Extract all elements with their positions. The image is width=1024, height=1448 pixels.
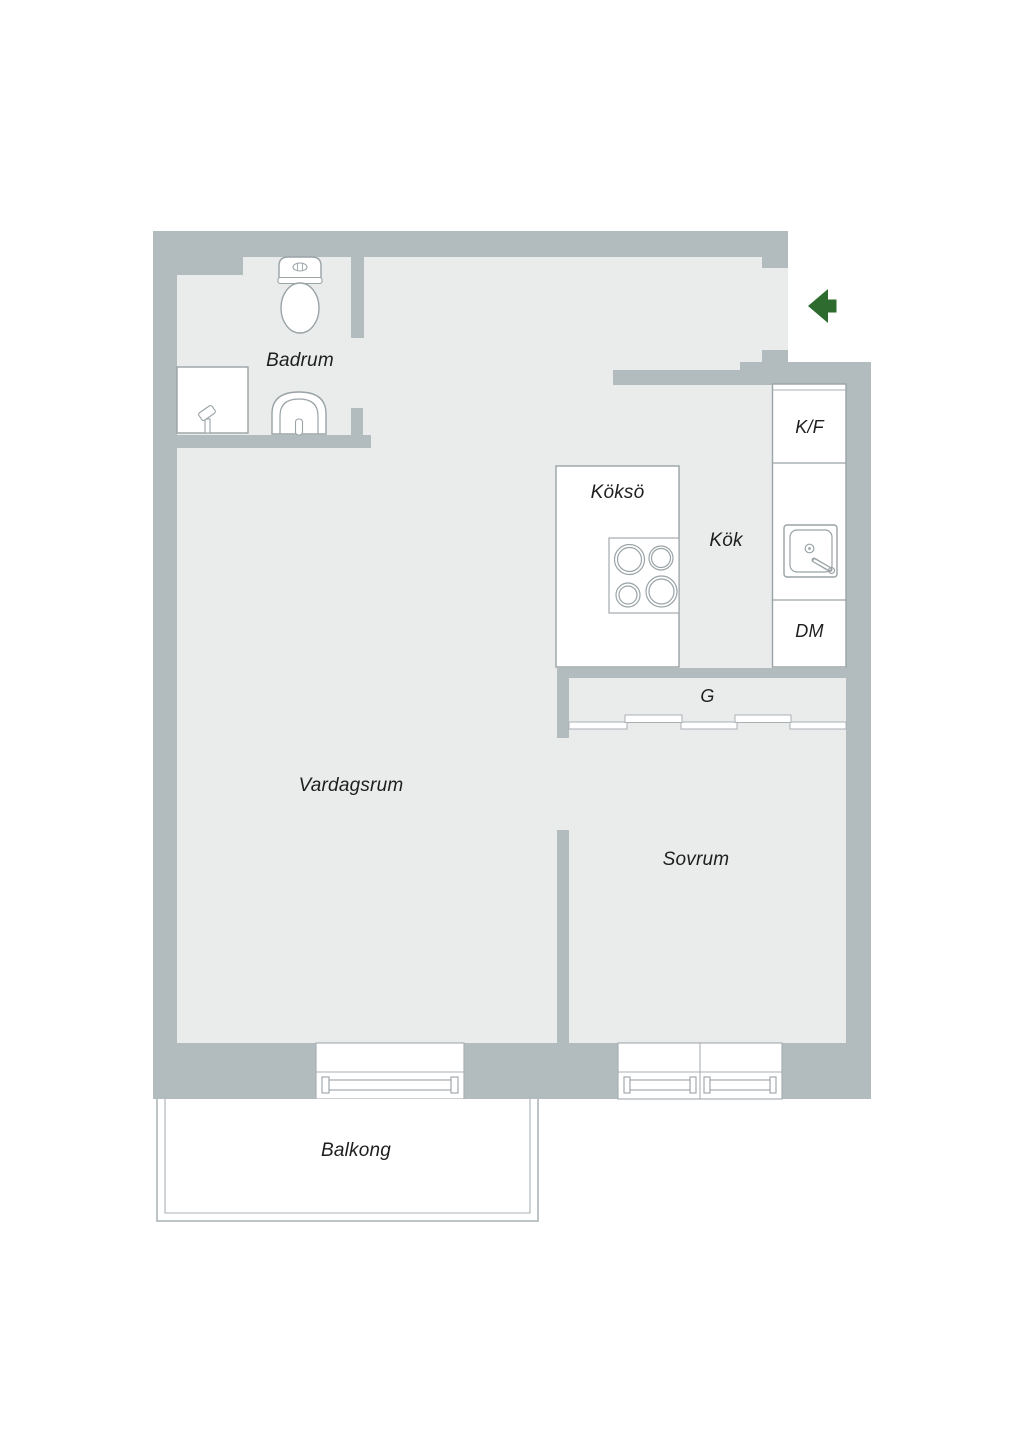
cooktop-icon [609,538,679,613]
left-wall [153,231,177,1099]
bathroom-wall-stub-bottom [351,408,363,435]
top-wall [153,231,788,257]
toilet-icon [278,257,322,333]
right-wall [846,362,871,1099]
bedroom-divider-wall [557,830,569,1043]
entrance-step [762,350,788,362]
living-room-window [316,1043,464,1099]
room-label-badrum: Badrum [240,351,360,372]
floor-plan-drawing [0,0,1024,1448]
shower-icon [177,367,248,433]
bedroom-window [618,1043,782,1099]
appliance-label-dishwasher: DM [773,622,846,642]
entrance-notch [762,257,788,268]
kitchen-sink-icon [784,525,837,577]
room-label-garderob: G [569,687,846,707]
kitchen-north-wall-thick [740,362,846,385]
room-label-vardagsrum: Vardagsrum [251,776,451,797]
closet-top-wall [557,668,846,678]
room-label-kokso: Köksö [556,483,679,504]
bathroom-wall-stub-top [351,257,364,338]
sink-icon [272,392,326,435]
floor-plan: Badrum K/F Köksö Kök DM G Vardagsrum Sov… [0,0,1024,1448]
room-label-sovrum: Sovrum [596,850,796,871]
appliance-label-fridge-freezer: K/F [773,418,846,438]
room-label-kok: Kök [679,531,773,552]
bathroom-south-wall [170,435,371,448]
closet-left-wall [557,668,569,738]
room-label-balkong: Balkong [256,1141,456,1162]
